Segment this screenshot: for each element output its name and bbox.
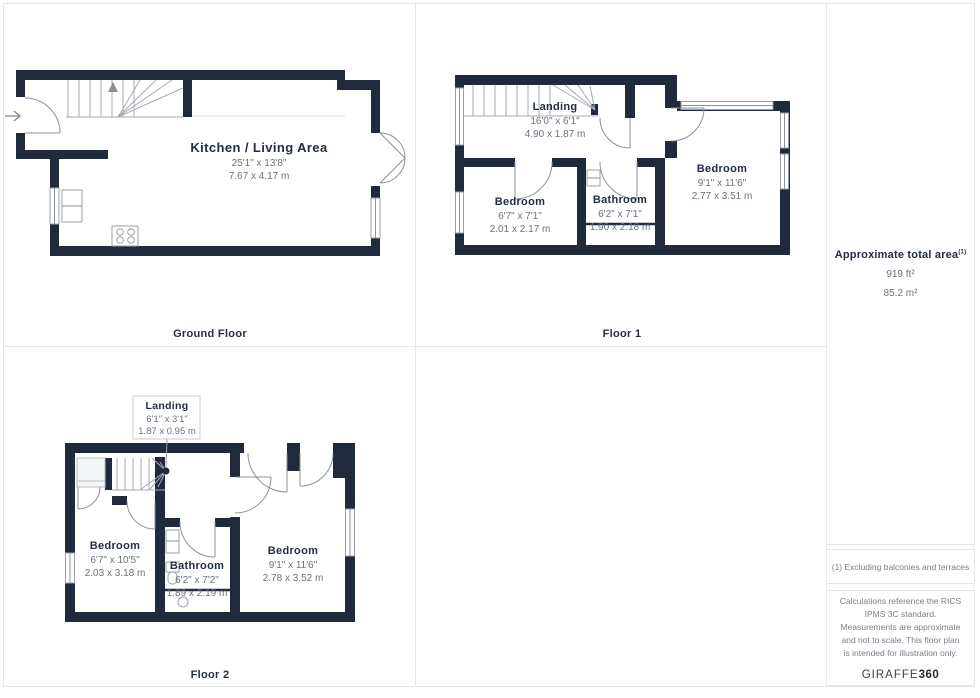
- room-dim-imperial: 9'1" x 11'6": [698, 178, 747, 189]
- entry-arrow-icon: [5, 111, 20, 121]
- floor2-bedroom-large-label: Bedroom 9'1" x 11'6" 2.78 x 3.52 m: [263, 545, 324, 584]
- brand-suffix: 360: [919, 669, 940, 681]
- ground-floor-stairs: [66, 80, 183, 117]
- stairs-direction-arrow: [108, 82, 118, 92]
- floor1-bathroom-sink: [587, 170, 600, 186]
- room-dim-metric: 1.90 x 2.18 m: [590, 222, 651, 233]
- total-area-title-text: Approximate total area: [835, 249, 959, 261]
- ground-floor-plan: Kitchen / Living Area 25'1" x 13'8" 7.67…: [0, 0, 415, 346]
- room-name: Bedroom: [697, 163, 747, 175]
- room-dim-imperial: 9'1" x 11'6": [269, 560, 318, 571]
- room-dim-imperial: 6'7" x 10'5": [90, 555, 140, 566]
- entry-door-arc: [25, 98, 60, 133]
- room-name: Landing: [146, 400, 189, 412]
- room-name: Kitchen / Living Area: [190, 140, 328, 155]
- footnote-box: (1) Excluding balconies and terraces: [826, 549, 975, 584]
- room-dim-metric: 2.77 x 3.51 m: [692, 191, 753, 202]
- floor2-closet: [77, 458, 105, 487]
- room-dim-imperial: 6'1" x 3'1": [146, 414, 188, 425]
- total-area-imperial: 919 ft²: [886, 269, 914, 280]
- room-dim-imperial: 25'1" x 13'8": [232, 158, 287, 169]
- room-dim-metric: 1.89 x 2.19 m: [167, 588, 228, 599]
- floor1-plan: Landing 16'0" x 6'1" 4.90 x 1.87 m Bedro…: [415, 0, 826, 346]
- floor2-panel: Landing 6'1" x 3'1" 1.87 x 0.95 m Bedroo…: [0, 346, 415, 698]
- floor2-bedroom-small-label: Bedroom 6'7" x 10'5" 2.03 x 3.18 m: [85, 540, 146, 579]
- room-dim-imperial: 16'0" x 6'1": [530, 116, 580, 127]
- room-dim-metric: 2.78 x 3.52 m: [263, 573, 324, 584]
- hob-icon: [112, 226, 138, 246]
- room-dim-imperial: 6'7" x 7'1": [498, 211, 542, 222]
- ground-floor-walls: [16, 70, 380, 256]
- floor1-bedroom-large-label: Bedroom 9'1" x 11'6" 2.77 x 3.51 m: [692, 163, 753, 202]
- floor2-landing-callout: Landing 6'1" x 3'1" 1.87 x 0.95 m: [133, 396, 200, 439]
- ground-floor-panel: Kitchen / Living Area 25'1" x 13'8" 7.67…: [0, 0, 415, 351]
- total-area-metric: 85.2 m²: [884, 288, 918, 299]
- floor2-plan: Landing 6'1" x 3'1" 1.87 x 0.95 m Bedroo…: [0, 346, 415, 693]
- room-name: Bedroom: [495, 196, 545, 208]
- floor1-landing-label: Landing 16'0" x 6'1" 4.90 x 1.87 m: [525, 101, 586, 140]
- window-right: [371, 198, 380, 238]
- ground-floor-label: Ground Floor: [173, 328, 247, 340]
- giraffe360-logo: GIRAFFE360: [862, 669, 940, 681]
- floor2-label: Floor 2: [191, 669, 230, 681]
- floor1-panel: Landing 16'0" x 6'1" 4.90 x 1.87 m Bedro…: [415, 0, 826, 351]
- landing-leader-dot: [163, 468, 170, 475]
- disclaimer-box: Calculations reference the RICS IPMS 3C …: [826, 590, 975, 686]
- footnote-text: (1) Excluding balconies and terraces: [832, 562, 970, 572]
- room-name: Landing: [533, 101, 578, 113]
- total-area-title: Approximate total area(1): [835, 249, 967, 261]
- french-doors-arcs: [380, 133, 405, 183]
- room-name: Bedroom: [268, 545, 318, 557]
- total-area-box: Approximate total area(1) 919 ft² 85.2 m…: [826, 3, 975, 545]
- room-dim-metric: 2.03 x 3.18 m: [85, 568, 146, 579]
- room-dim-metric: 1.87 x 0.95 m: [138, 426, 196, 437]
- brand-name: GIRAFFE: [862, 669, 919, 681]
- disclaimer-text: Calculations reference the RICS IPMS 3C …: [839, 595, 962, 660]
- floor1-bedroom-small-label: Bedroom 6'7" x 7'1" 2.01 x 2.17 m: [490, 196, 551, 235]
- floor1-bathroom-label: Bathroom 6'2" x 7'1" 1.90 x 2.18 m: [590, 194, 651, 233]
- floor1-stairs: [464, 85, 598, 116]
- kitchen-label: Kitchen / Living Area 25'1" x 13'8" 7.67…: [190, 140, 328, 182]
- total-area-superscript: (1): [958, 249, 966, 255]
- window-left: [50, 188, 59, 224]
- room-name: Bathroom: [170, 560, 224, 572]
- floor2-bathroom-label: Bathroom 6'2" x 7'2" 1.89 x 2.19 m: [167, 560, 228, 599]
- floor1-label: Floor 1: [603, 328, 642, 340]
- room-name: Bathroom: [593, 194, 647, 206]
- room-dim-metric: 4.90 x 1.87 m: [525, 129, 586, 140]
- kitchen-sink-unit: [62, 190, 82, 222]
- room-name: Bedroom: [90, 540, 140, 552]
- room-dim-imperial: 6'2" x 7'2": [175, 575, 219, 586]
- room-dim-imperial: 6'2" x 7'1": [598, 209, 642, 220]
- room-dim-metric: 2.01 x 2.17 m: [490, 224, 551, 235]
- room-dim-metric: 7.67 x 4.17 m: [229, 171, 290, 182]
